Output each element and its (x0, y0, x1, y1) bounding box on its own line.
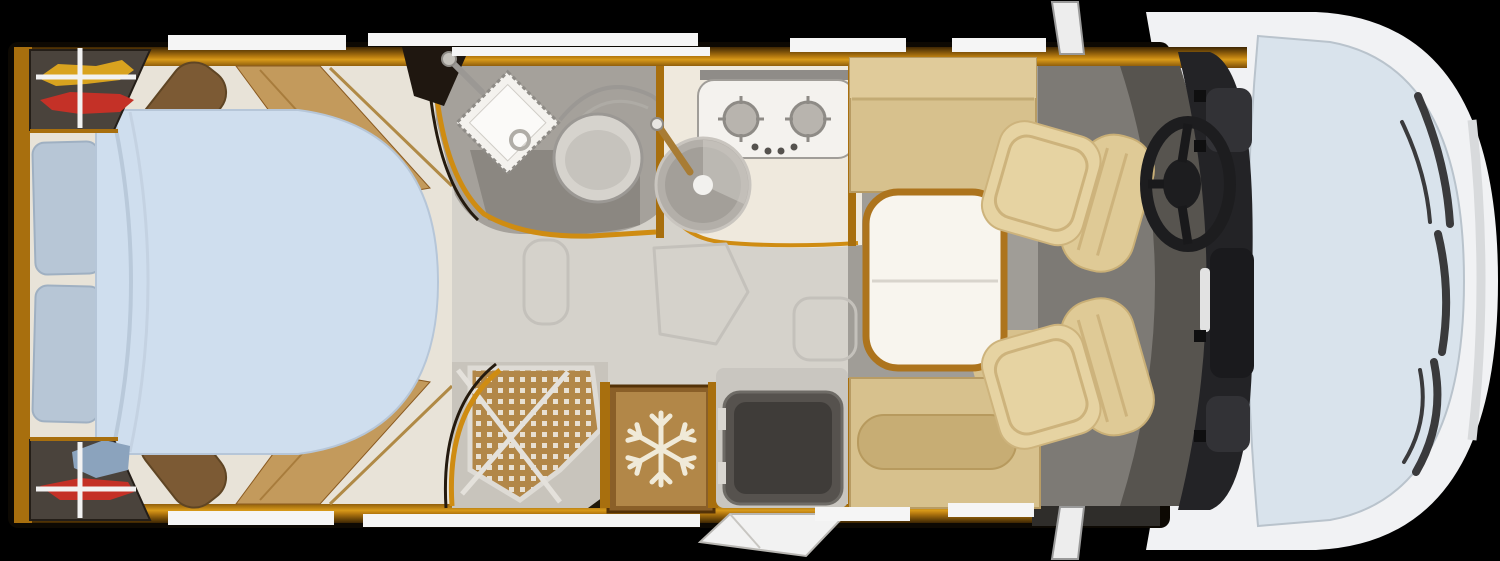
sink-drain (693, 175, 713, 195)
kitchen-divider (656, 66, 664, 238)
window-strip (363, 514, 700, 527)
refrigerator (600, 382, 718, 512)
bench-top-backrest (850, 58, 1036, 98)
window-strip (790, 38, 906, 52)
dash-slot (1200, 268, 1210, 332)
kitchen (651, 66, 862, 248)
window-strip (168, 35, 346, 50)
toilet-bowl (565, 130, 631, 190)
bench-bolster (858, 415, 1016, 469)
fridge-frame (600, 382, 610, 508)
window-strip (815, 507, 910, 521)
window-strip (452, 47, 710, 56)
window-strip (952, 38, 1046, 52)
step-hinge (718, 462, 726, 484)
pillow-bottom (32, 285, 102, 423)
step-hinge (718, 408, 726, 430)
window-strip (168, 511, 334, 525)
window-strip (948, 503, 1034, 517)
floorplan-canvas (0, 0, 1500, 561)
entry-step-inner (734, 402, 832, 494)
window-strip (368, 33, 698, 46)
pillow-top (32, 141, 101, 275)
